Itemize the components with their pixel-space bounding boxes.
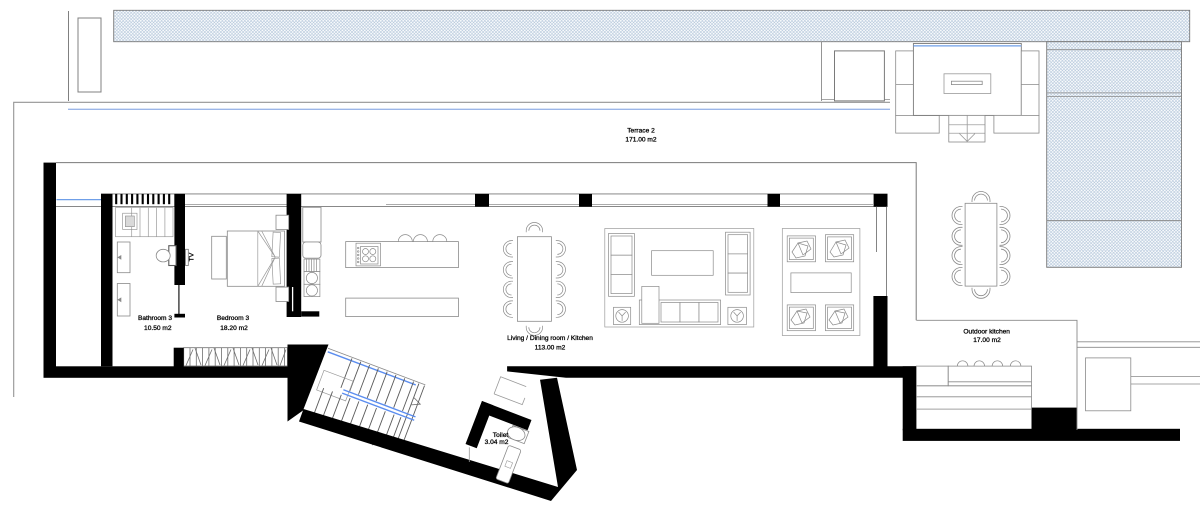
svg-text:18.20 m2: 18.20 m2	[220, 325, 248, 332]
svg-text:3.04 m2: 3.04 m2	[485, 439, 509, 446]
svg-text:113.00 m2: 113.00 m2	[535, 345, 566, 352]
svg-text:Bedroom 3: Bedroom 3	[217, 315, 250, 322]
svg-text:171.00 m2: 171.00 m2	[625, 137, 656, 144]
svg-text:17.00 m2: 17.00 m2	[973, 337, 1001, 344]
svg-text:10.50 m2: 10.50 m2	[144, 325, 172, 332]
svg-text:TV: TV	[189, 252, 196, 261]
svg-text:Living / Dining room / Kitchen: Living / Dining room / Kitchen	[507, 335, 593, 342]
svg-text:Bathroom 3: Bathroom 3	[138, 315, 172, 322]
svg-text:Outdoor kitchen: Outdoor kitchen	[963, 329, 1010, 336]
svg-text:Terrace 2: Terrace 2	[627, 128, 655, 135]
